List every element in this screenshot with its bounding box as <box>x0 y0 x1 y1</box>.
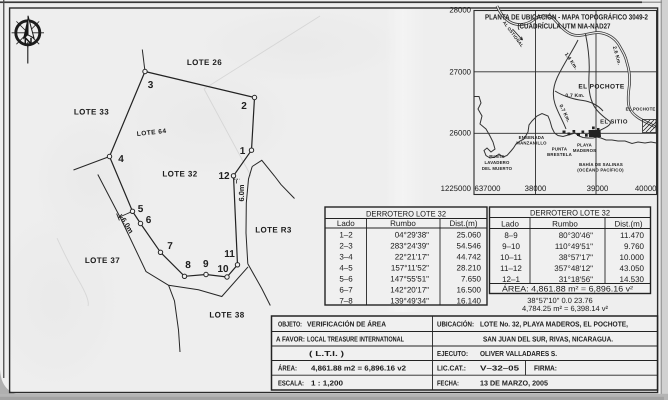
svg-text:1: 1 <box>240 146 246 157</box>
svg-text:04°29'38": 04°29'38" <box>395 230 429 239</box>
svg-text:16.500: 16.500 <box>457 285 482 294</box>
svg-text:LIC.CAT.:: LIC.CAT.: <box>437 364 466 373</box>
svg-text:V–32–05: V–32–05 <box>480 364 519 373</box>
svg-text:139°49'34": 139°49'34" <box>390 296 429 305</box>
svg-text:7: 7 <box>167 241 173 252</box>
svg-text:8: 8 <box>185 260 191 271</box>
svg-text:80°30'46": 80°30'46" <box>559 231 593 240</box>
svg-text:A FAVOR:: A FAVOR: <box>276 334 305 343</box>
svg-text:BAHÍA DE SALINAS: BAHÍA DE SALINAS <box>579 162 623 167</box>
svg-text:Dist.(m): Dist.(m) <box>450 219 478 228</box>
svg-text:LOTE 37: LOTE 37 <box>85 256 120 265</box>
svg-text:Rumbo: Rumbo <box>390 219 416 228</box>
svg-text:ENSENADA: ENSENADA <box>519 135 545 140</box>
svg-text:637000: 637000 <box>475 184 502 193</box>
svg-text:PLANTA DE UBICACIÓN - MAPA TOP: PLANTA DE UBICACIÓN - MAPA TOPOGRÁFICO 3… <box>485 13 648 22</box>
svg-text:LAVADERO: LAVADERO <box>484 160 510 165</box>
svg-text:6.0m: 6.0m <box>237 184 246 201</box>
svg-text:0.7 Km.: 0.7 Km. <box>565 93 585 99</box>
svg-text:OBJETO:: OBJETO: <box>278 320 302 329</box>
svg-text:16.140: 16.140 <box>457 296 482 305</box>
svg-text:3: 3 <box>148 80 154 91</box>
svg-text:4,861.88 m2 = 6,896.16 v2: 4,861.88 m2 = 6,896.16 v2 <box>311 364 406 373</box>
svg-text:43.050: 43.050 <box>620 264 645 273</box>
svg-text:DERROTERO LOTE 32: DERROTERO LOTE 32 <box>530 208 611 217</box>
svg-text:PUNTA: PUNTA <box>489 154 504 159</box>
svg-text:9.760: 9.760 <box>624 242 645 251</box>
svg-text:11–12: 11–12 <box>500 264 522 273</box>
svg-text:40000: 40000 <box>635 184 657 193</box>
svg-text:Rumbo: Rumbo <box>552 219 578 228</box>
svg-text:EL POCHOTE: EL POCHOTE <box>626 107 656 112</box>
svg-text:5–6: 5–6 <box>339 274 353 283</box>
svg-text:25.060: 25.060 <box>457 230 482 239</box>
svg-text:142°20'17": 142°20'17" <box>390 285 429 294</box>
svg-text:LOTE 38: LOTE 38 <box>209 311 244 320</box>
svg-text:7.650: 7.650 <box>461 274 482 283</box>
svg-text:LOCAL TREASURE INTERNATIONAL: LOCAL TREASURE INTERNATIONAL <box>307 334 404 343</box>
svg-text:SAN JUAN DEL SUR, RIVAS,: SAN JUAN DEL SUR, RIVAS, NICARAGUA. <box>483 334 613 343</box>
svg-text:6–7: 6–7 <box>339 285 353 294</box>
svg-text:OLIVER VALLADARES S.: OLIVER VALLADARES S. <box>480 349 557 358</box>
svg-text:MADEROS: MADEROS <box>573 148 596 153</box>
svg-text:(OCÉANO PACÍFICO): (OCÉANO PACÍFICO) <box>577 168 624 173</box>
svg-text:PUNTA: PUNTA <box>552 147 567 152</box>
svg-text:9–10: 9–10 <box>502 242 520 251</box>
svg-text:ESCALA:: ESCALA: <box>278 378 304 387</box>
svg-text:EL SITIO: EL SITIO <box>600 119 628 126</box>
svg-text:MANZANILLO: MANZANILLO <box>516 141 547 146</box>
svg-text:10–11: 10–11 <box>500 253 522 262</box>
svg-text:12–1: 12–1 <box>502 275 520 284</box>
svg-text:22°21'17": 22°21'17" <box>395 252 429 261</box>
svg-text:11.470: 11.470 <box>620 231 644 240</box>
svg-text:Lado: Lado <box>501 219 519 228</box>
svg-text:2: 2 <box>241 101 247 112</box>
svg-text:357°48'12": 357°48'12" <box>554 264 593 273</box>
svg-text:8–9: 8–9 <box>504 231 518 240</box>
svg-text:BRESTELA: BRESTELA <box>547 152 572 157</box>
svg-text:Lado: Lado <box>337 219 355 228</box>
svg-text:6: 6 <box>146 215 152 226</box>
svg-text:DEL MUERTO: DEL MUERTO <box>482 166 513 171</box>
svg-text:10.000: 10.000 <box>620 253 645 262</box>
svg-text:283°24'39": 283°24'39" <box>390 241 429 250</box>
svg-text:27000: 27000 <box>449 67 471 76</box>
svg-text:1 : 1,200: 1 : 1,200 <box>311 378 343 387</box>
svg-text:26000: 26000 <box>449 129 471 138</box>
svg-text:157°11'52": 157°11'52" <box>391 263 429 272</box>
svg-text:13 DE MARZO, 2005: 13 DE MARZO, 2005 <box>480 378 548 387</box>
svg-text:(CUADRÍCULA UTM NIA-NAD27: (CUADRÍCULA UTM NIA-NAD27 <box>518 22 611 31</box>
svg-text:14.530: 14.530 <box>620 275 645 284</box>
svg-text:31°18'56": 31°18'56" <box>559 275 593 284</box>
svg-text:LOTE 32: LOTE 32 <box>162 170 197 179</box>
svg-text:3–4: 3–4 <box>339 252 353 261</box>
svg-text:2–3: 2–3 <box>339 241 353 250</box>
svg-text:ÁREA:: ÁREA: <box>278 364 297 373</box>
svg-text:FIRMA:: FIRMA: <box>534 364 557 373</box>
svg-text:DERROTERO LOTE 32: DERROTERO LOTE 32 <box>366 209 447 218</box>
svg-text:1225000: 1225000 <box>441 184 472 193</box>
svg-text:LOTE R3: LOTE R3 <box>255 226 292 235</box>
svg-text:LOTE 33: LOTE 33 <box>74 108 109 117</box>
svg-text:LOTE No. 32, PLAYA MADEROS: LOTE No. 32, PLAYA MADEROS, EL POCHOTE, <box>480 320 628 329</box>
svg-text:LOTE 26: LOTE 26 <box>187 58 222 67</box>
svg-text:38000: 38000 <box>525 184 547 193</box>
svg-text:PLAYA: PLAYA <box>577 143 592 148</box>
svg-text:EJECUTO:: EJECUTO: <box>437 349 468 358</box>
svg-text:44.742: 44.742 <box>457 252 482 261</box>
svg-text:EL POCHOTE: EL POCHOTE <box>578 84 624 91</box>
svg-text:7–8: 7–8 <box>339 296 353 305</box>
svg-text:Dist.(m): Dist.(m) <box>615 219 643 228</box>
svg-text:4,784.25 m² = 6,398.14 v²: 4,784.25 m² = 6,398.14 v² <box>522 304 609 313</box>
svg-text:12: 12 <box>218 171 230 182</box>
svg-text:110°49'51": 110°49'51" <box>555 242 593 251</box>
svg-text:5: 5 <box>138 204 144 215</box>
svg-text:( L.T.I. ): ( L.T.I. ) <box>309 349 345 358</box>
svg-text:ÁREA: 4,861.88 m² = 6,896.16: ÁREA: 4,861.88 m² = 6,896.16 v² <box>502 284 633 293</box>
svg-text:9: 9 <box>203 259 209 270</box>
svg-text:10: 10 <box>217 264 229 275</box>
svg-text:VERIFICACIÓN DE ÁREA: VERIFICACIÓN DE ÁREA <box>307 320 386 329</box>
svg-text:54.546: 54.546 <box>457 241 482 250</box>
svg-text:28000: 28000 <box>449 5 471 14</box>
svg-text:4–5: 4–5 <box>339 263 353 272</box>
svg-text:147°55'51": 147°55'51" <box>390 274 429 283</box>
svg-text:28.210: 28.210 <box>457 263 482 272</box>
svg-text:39000: 39000 <box>587 184 609 193</box>
svg-text:4: 4 <box>118 154 124 165</box>
svg-text:38°57'17": 38°57'17" <box>559 253 593 262</box>
svg-text:11: 11 <box>224 249 235 260</box>
svg-text:UBICACIÓN:: UBICACIÓN: <box>437 320 474 329</box>
svg-text:FECHA:: FECHA: <box>437 378 459 387</box>
svg-text:1–2: 1–2 <box>339 230 353 239</box>
